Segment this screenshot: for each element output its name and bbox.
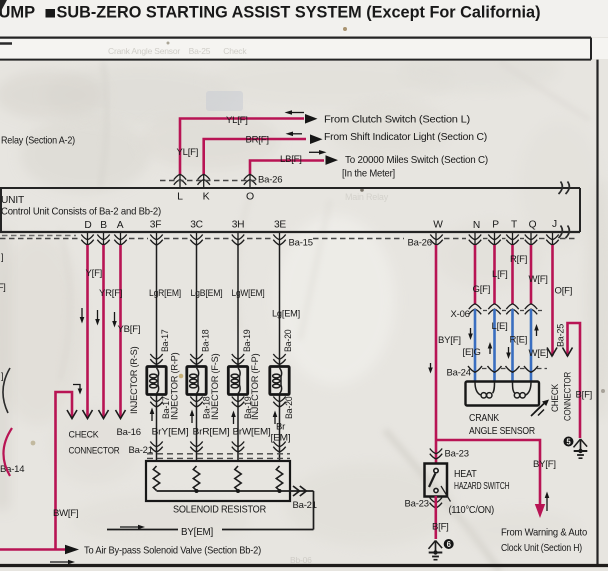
svg-text:F]: F] [0, 282, 6, 292]
svg-text:SUB-ZERO STARTING ASSIST SYSTE: SUB-ZERO STARTING ASSIST SYSTEM (Except … [57, 4, 541, 22]
svg-text:From Clutch Switch (Section L): From Clutch Switch (Section L) [324, 115, 470, 126]
svg-text:Ba-17: Ba-17 [160, 329, 170, 352]
svg-text:Ba-20: Ba-20 [283, 329, 293, 352]
svg-text:Ba-16: Ba-16 [117, 427, 141, 438]
svg-text:To Air By-pass Solenoid Valve: To Air By-pass Solenoid Valve (Section B… [84, 546, 261, 557]
svg-text:Ba-20: Ba-20 [284, 396, 294, 419]
svg-text:BrW[EM]: BrW[EM] [233, 427, 271, 438]
svg-text:INJECTOR (R-P): INJECTOR (R-P) [170, 352, 180, 420]
svg-text:]: ] [1, 252, 3, 262]
svg-text:Br: Br [276, 422, 285, 433]
svg-text:BY[F]: BY[F] [438, 335, 461, 346]
svg-text:B[F]: B[F] [576, 390, 593, 401]
svg-text:BrY[EM]: BrY[EM] [152, 427, 189, 438]
svg-text:L: L [177, 191, 183, 203]
svg-text:CONNECTOR: CONNECTOR [563, 372, 574, 421]
svg-text:Ba-19: Ba-19 [243, 396, 253, 419]
svg-text:W: W [433, 220, 443, 231]
svg-text:BR[F]: BR[F] [246, 135, 269, 146]
svg-text:A: A [117, 220, 124, 231]
svg-text:3F: 3F [150, 220, 162, 231]
svg-text:J: J [552, 219, 557, 230]
svg-text:]: ] [1, 371, 3, 381]
svg-text:Main Relay: Main Relay [345, 192, 389, 202]
svg-text:CRANK: CRANK [469, 413, 499, 424]
svg-text:Ba-24: Ba-24 [447, 368, 471, 379]
svg-text:CHECK: CHECK [550, 383, 561, 412]
svg-text:O[F]: O[F] [555, 286, 573, 297]
svg-text:Ba-26: Ba-26 [408, 238, 432, 249]
svg-text:INJECTOR (R-S): INJECTOR (R-S) [129, 346, 139, 414]
svg-text:(110°C/ON): (110°C/ON) [449, 505, 495, 516]
svg-text:Ba-18: Ba-18 [201, 329, 211, 352]
svg-text:LgB[EM]: LgB[EM] [191, 288, 223, 299]
svg-text:HEAT: HEAT [454, 469, 477, 480]
svg-text:ANGLE SENSOR: ANGLE SENSOR [469, 426, 535, 437]
svg-text:Ba-23: Ba-23 [405, 499, 429, 510]
svg-text:X-06: X-06 [451, 309, 470, 320]
svg-text:[In the Meter]: [In the Meter] [342, 169, 395, 180]
svg-text:YL[F]: YL[F] [226, 115, 248, 126]
svg-text:From Warning & Auto: From Warning & Auto [501, 528, 587, 539]
svg-text:INJECTOR (F-S): INJECTOR (F-S) [210, 353, 220, 420]
svg-text:YB[F]: YB[F] [118, 324, 141, 335]
svg-text:Ba-14: Ba-14 [0, 464, 24, 475]
svg-text:3E: 3E [274, 220, 286, 231]
svg-text:R[F]: R[F] [510, 254, 527, 265]
svg-text:LgW[EM]: LgW[EM] [232, 288, 265, 299]
svg-text:N: N [473, 220, 480, 231]
svg-text:Ba-26: Ba-26 [258, 175, 282, 186]
svg-text:K: K [203, 191, 210, 203]
svg-text:3C: 3C [190, 220, 203, 231]
svg-text:To 20000 Miles Switch (Section: To 20000 Miles Switch (Section C) [345, 155, 488, 166]
svg-text:HAZARD SWITCH: HAZARD SWITCH [454, 481, 510, 492]
svg-text:Q: Q [529, 220, 537, 231]
svg-text:Ba-23: Ba-23 [445, 449, 469, 460]
svg-text:O: O [246, 191, 254, 203]
svg-text:Ba-17: Ba-17 [161, 396, 171, 419]
svg-text:3H: 3H [232, 220, 245, 231]
svg-text:Ba-18: Ba-18 [202, 396, 212, 419]
svg-text:L[E]: L[E] [492, 321, 508, 332]
svg-text:T: T [511, 220, 517, 231]
svg-text:Bb-06: Bb-06 [290, 555, 312, 565]
svg-text:UMP: UMP [0, 4, 35, 22]
svg-text:LgR[EM]: LgR[EM] [149, 288, 181, 299]
svg-text:P: P [492, 220, 499, 231]
svg-text:Y[F]: Y[F] [86, 268, 103, 279]
svg-text:W[E]: W[E] [529, 348, 549, 359]
svg-text:BW[F]: BW[F] [53, 508, 78, 519]
svg-text:G[F]: G[F] [473, 284, 491, 295]
svg-text:Clock Unit (Section H): Clock Unit (Section H) [501, 543, 582, 554]
svg-text:Lg[EM]: Lg[EM] [272, 309, 300, 320]
svg-text:YL[F]: YL[F] [177, 147, 199, 158]
svg-text:Relay (Section A-2): Relay (Section A-2) [1, 136, 75, 147]
svg-text:W[F]: W[F] [529, 274, 548, 285]
svg-text:YR[F]: YR[F] [99, 288, 122, 299]
svg-text:Ba-19: Ba-19 [242, 329, 252, 352]
svg-text:UNIT: UNIT [1, 195, 24, 206]
svg-text:Crank Angle Sensor Ba-25: Crank Angle Sensor Ba-25 Check [108, 46, 247, 56]
svg-text:L[F]: L[F] [492, 269, 508, 280]
svg-text:BY[F]: BY[F] [533, 459, 556, 470]
svg-text:Ba-15: Ba-15 [289, 238, 313, 249]
svg-text:BY[EM]: BY[EM] [181, 527, 213, 538]
svg-text:BrR[EM]: BrR[EM] [193, 427, 230, 438]
svg-text:SOLENOID RESISTOR: SOLENOID RESISTOR [173, 505, 266, 516]
svg-text:Ba-25: Ba-25 [556, 324, 566, 347]
svg-text:D: D [84, 220, 91, 231]
svg-text:LB[F]: LB[F] [280, 154, 302, 165]
svg-text:From Shift Indicator Light (Se: From Shift Indicator Light (Section C) [324, 132, 487, 143]
svg-text:B[F]: B[F] [432, 522, 449, 533]
svg-text:R[E]: R[E] [510, 335, 528, 346]
svg-text:B: B [100, 220, 107, 231]
svg-text:CONNECTOR: CONNECTOR [69, 446, 120, 457]
svg-text:[E]G: [E]G [463, 347, 481, 358]
svg-text:CHECK: CHECK [69, 430, 100, 441]
svg-text:Control Unit Consists of Ba-2: Control Unit Consists of Ba-2 and Bb-2) [1, 207, 161, 218]
